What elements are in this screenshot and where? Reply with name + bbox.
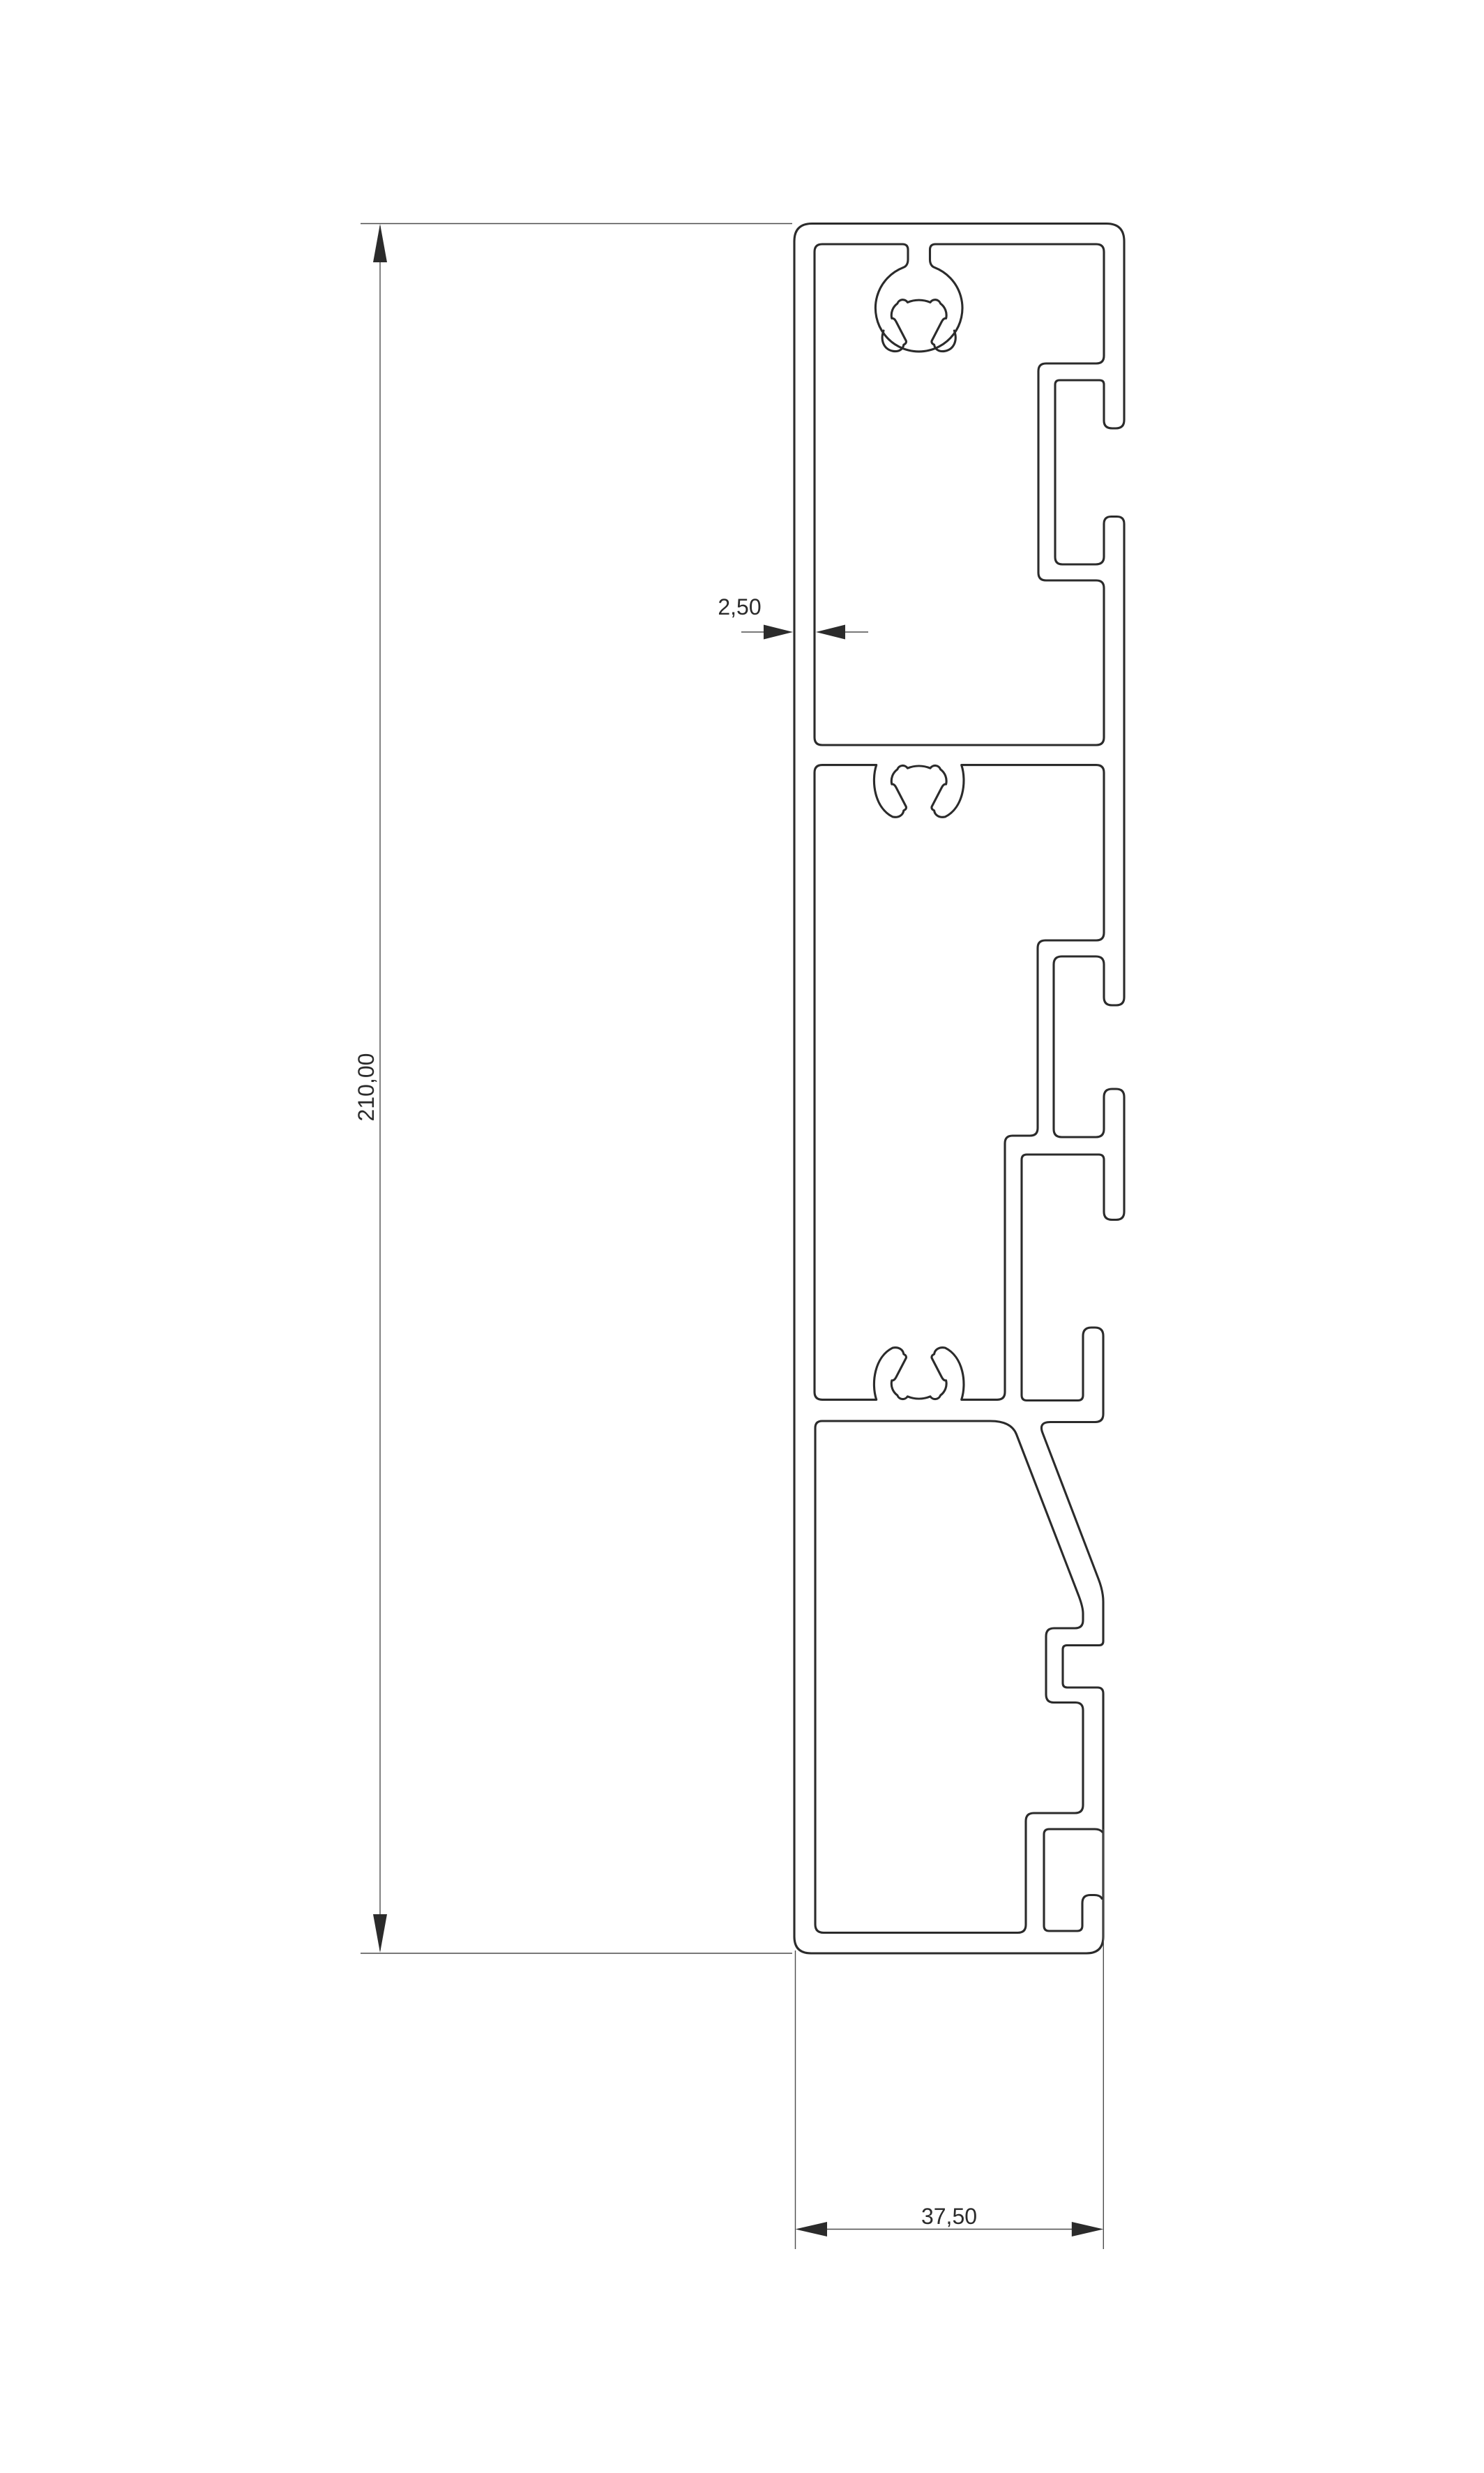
svg-text:37,50: 37,50 [921,2204,977,2229]
svg-text:210,00: 210,00 [354,1053,379,1122]
svg-text:2,50: 2,50 [718,594,761,619]
